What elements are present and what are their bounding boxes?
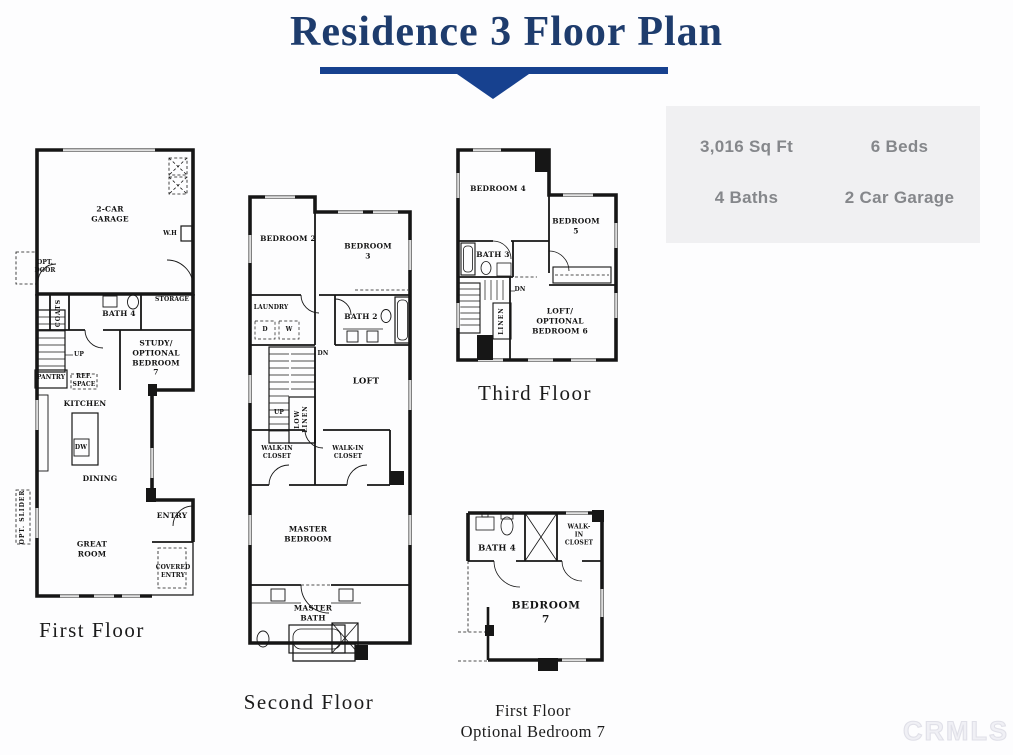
room-label-up: UP (74, 351, 84, 359)
room-label-bedroom4: BEDROOM 4 (470, 184, 526, 194)
room-label-water-heater: W.H (163, 230, 177, 238)
first-floor-plan: 2-CAR GARAGE W.H OPT. DOOR COATS BATH 4 … (15, 148, 195, 618)
room-label-bedroom3: BEDROOM 3 (342, 241, 395, 261)
room-label-pantry: PANTRY (37, 374, 65, 382)
room-label-coats: COATS (55, 299, 63, 327)
room-label-linen: LINEN (498, 307, 506, 335)
stat-beds: 6 Beds (871, 137, 929, 157)
crmls-watermark: CRMLS (903, 716, 1009, 747)
caption-optional-bedroom7: First Floor Optional Bedroom 7 (443, 700, 623, 743)
page-title: Residence 3 Floor Plan (0, 8, 1013, 56)
room-label-bedroom5: BEDROOM 5 (552, 216, 600, 236)
optional-bedroom7-plan: BATH 4 WALK-IN CLOSET BEDROOM 7 (458, 497, 608, 692)
room-label-dn: DN (515, 286, 526, 294)
floor-plan-page: Residence 3 Floor Plan 3,016 Sq Ft 6 Bed… (0, 0, 1013, 755)
caption-second-floor: Second Floor (219, 690, 399, 715)
room-label-laundry: LAUNDRY (254, 304, 289, 312)
room-label-walkin-closet-2: WALK-IN CLOSET (332, 445, 364, 461)
room-label-garage: 2-CAR GARAGE (91, 204, 129, 224)
room-label-dryer: D (262, 326, 267, 334)
stat-baths: 4 Baths (715, 188, 779, 208)
room-label-bedroom7: BEDROOM 7 (512, 599, 581, 626)
room-label-loft: LOFT (353, 376, 380, 387)
room-label-opt-slider: OPT. SLIDER (19, 490, 27, 545)
third-floor-plan: BEDROOM 4 BEDROOM 5 BATH 3 DN LINEN LOFT… (453, 143, 621, 375)
room-label-covered-entry: COVERED ENTRY (156, 564, 191, 580)
room-label-bath4: BATH 4 (102, 309, 135, 319)
room-label-bedroom2: BEDROOM 2 (260, 234, 316, 244)
stats-panel: 3,016 Sq Ft 6 Beds 4 Baths 2 Car Garage (666, 106, 980, 243)
room-label-bath4-optional: BATH 4 (478, 543, 516, 554)
room-label-great-room: GREAT ROOM (77, 539, 107, 559)
room-label-bath3: BATH 3 (476, 250, 509, 260)
room-label-walkin-closet: WALK-IN CLOSET (565, 523, 594, 546)
room-label-opt-door: OPT. DOOR (34, 259, 55, 275)
caption-third-floor: Third Floor (445, 381, 625, 406)
caption-first-floor: First Floor (2, 618, 182, 643)
stat-sqft: 3,016 Sq Ft (700, 137, 793, 157)
room-label-loft-optional-bedroom6: LOFT/ OPTIONAL BEDROOM 6 (532, 306, 588, 335)
room-label-dn: DN (318, 350, 329, 358)
room-label-study: STUDY/ OPTIONAL BEDROOM 7 (132, 339, 180, 378)
room-label-entry: ENTRY (157, 511, 188, 521)
title-underline (320, 67, 668, 74)
room-label-kitchen: KITCHEN (64, 399, 107, 409)
room-label-storage: STORAGE (155, 296, 189, 304)
room-label-up: UP (274, 409, 284, 417)
room-label-master-bath: MASTER BATH (294, 603, 332, 623)
room-label-ref-space: REF. SPACE (73, 373, 96, 389)
room-label-master-bedroom: MASTER BEDROOM (284, 524, 332, 544)
room-label-dining: DINING (83, 474, 118, 484)
title-arrow-icon (457, 74, 529, 99)
room-label-low-linen: LOW LINEN (294, 405, 310, 433)
second-floor-plan: BEDROOM 2 BEDROOM 3 LAUNDRY D W BATH 2 D… (243, 195, 421, 695)
stat-garage: 2 Car Garage (845, 188, 954, 208)
room-label-washer: W (286, 326, 293, 334)
room-label-walkin-closet-1: WALK-IN CLOSET (261, 445, 293, 461)
room-label-bath2: BATH 2 (344, 312, 377, 322)
room-label-dw: DW (75, 444, 87, 452)
